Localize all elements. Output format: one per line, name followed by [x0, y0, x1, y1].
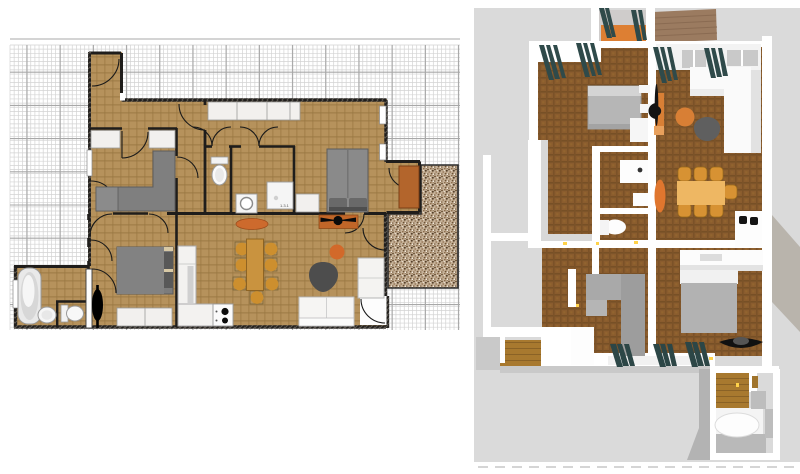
- svg-text:1.3.1: 1.3.1: [280, 203, 290, 208]
